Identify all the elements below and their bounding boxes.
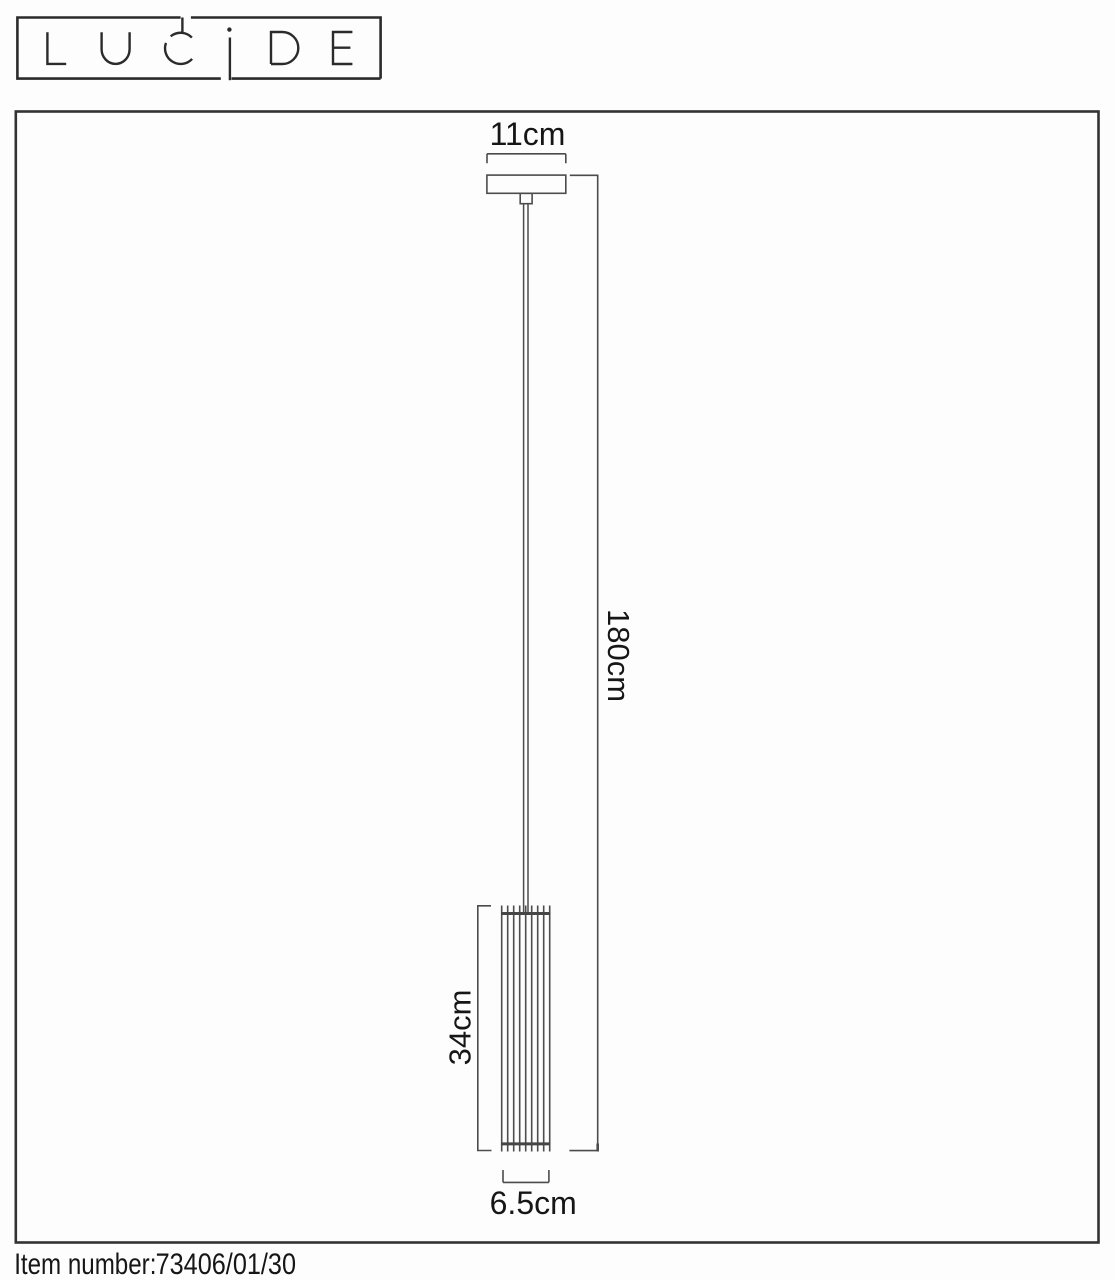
svg-text:Item number:: Item number: [14,1246,156,1280]
svg-text:11cm: 11cm [490,116,566,152]
svg-text:6.5cm: 6.5cm [490,1185,577,1221]
svg-text:73406/01/30: 73406/01/30 [156,1247,296,1280]
svg-text:180cm: 180cm [601,609,636,702]
svg-text:34cm: 34cm [442,990,477,1066]
